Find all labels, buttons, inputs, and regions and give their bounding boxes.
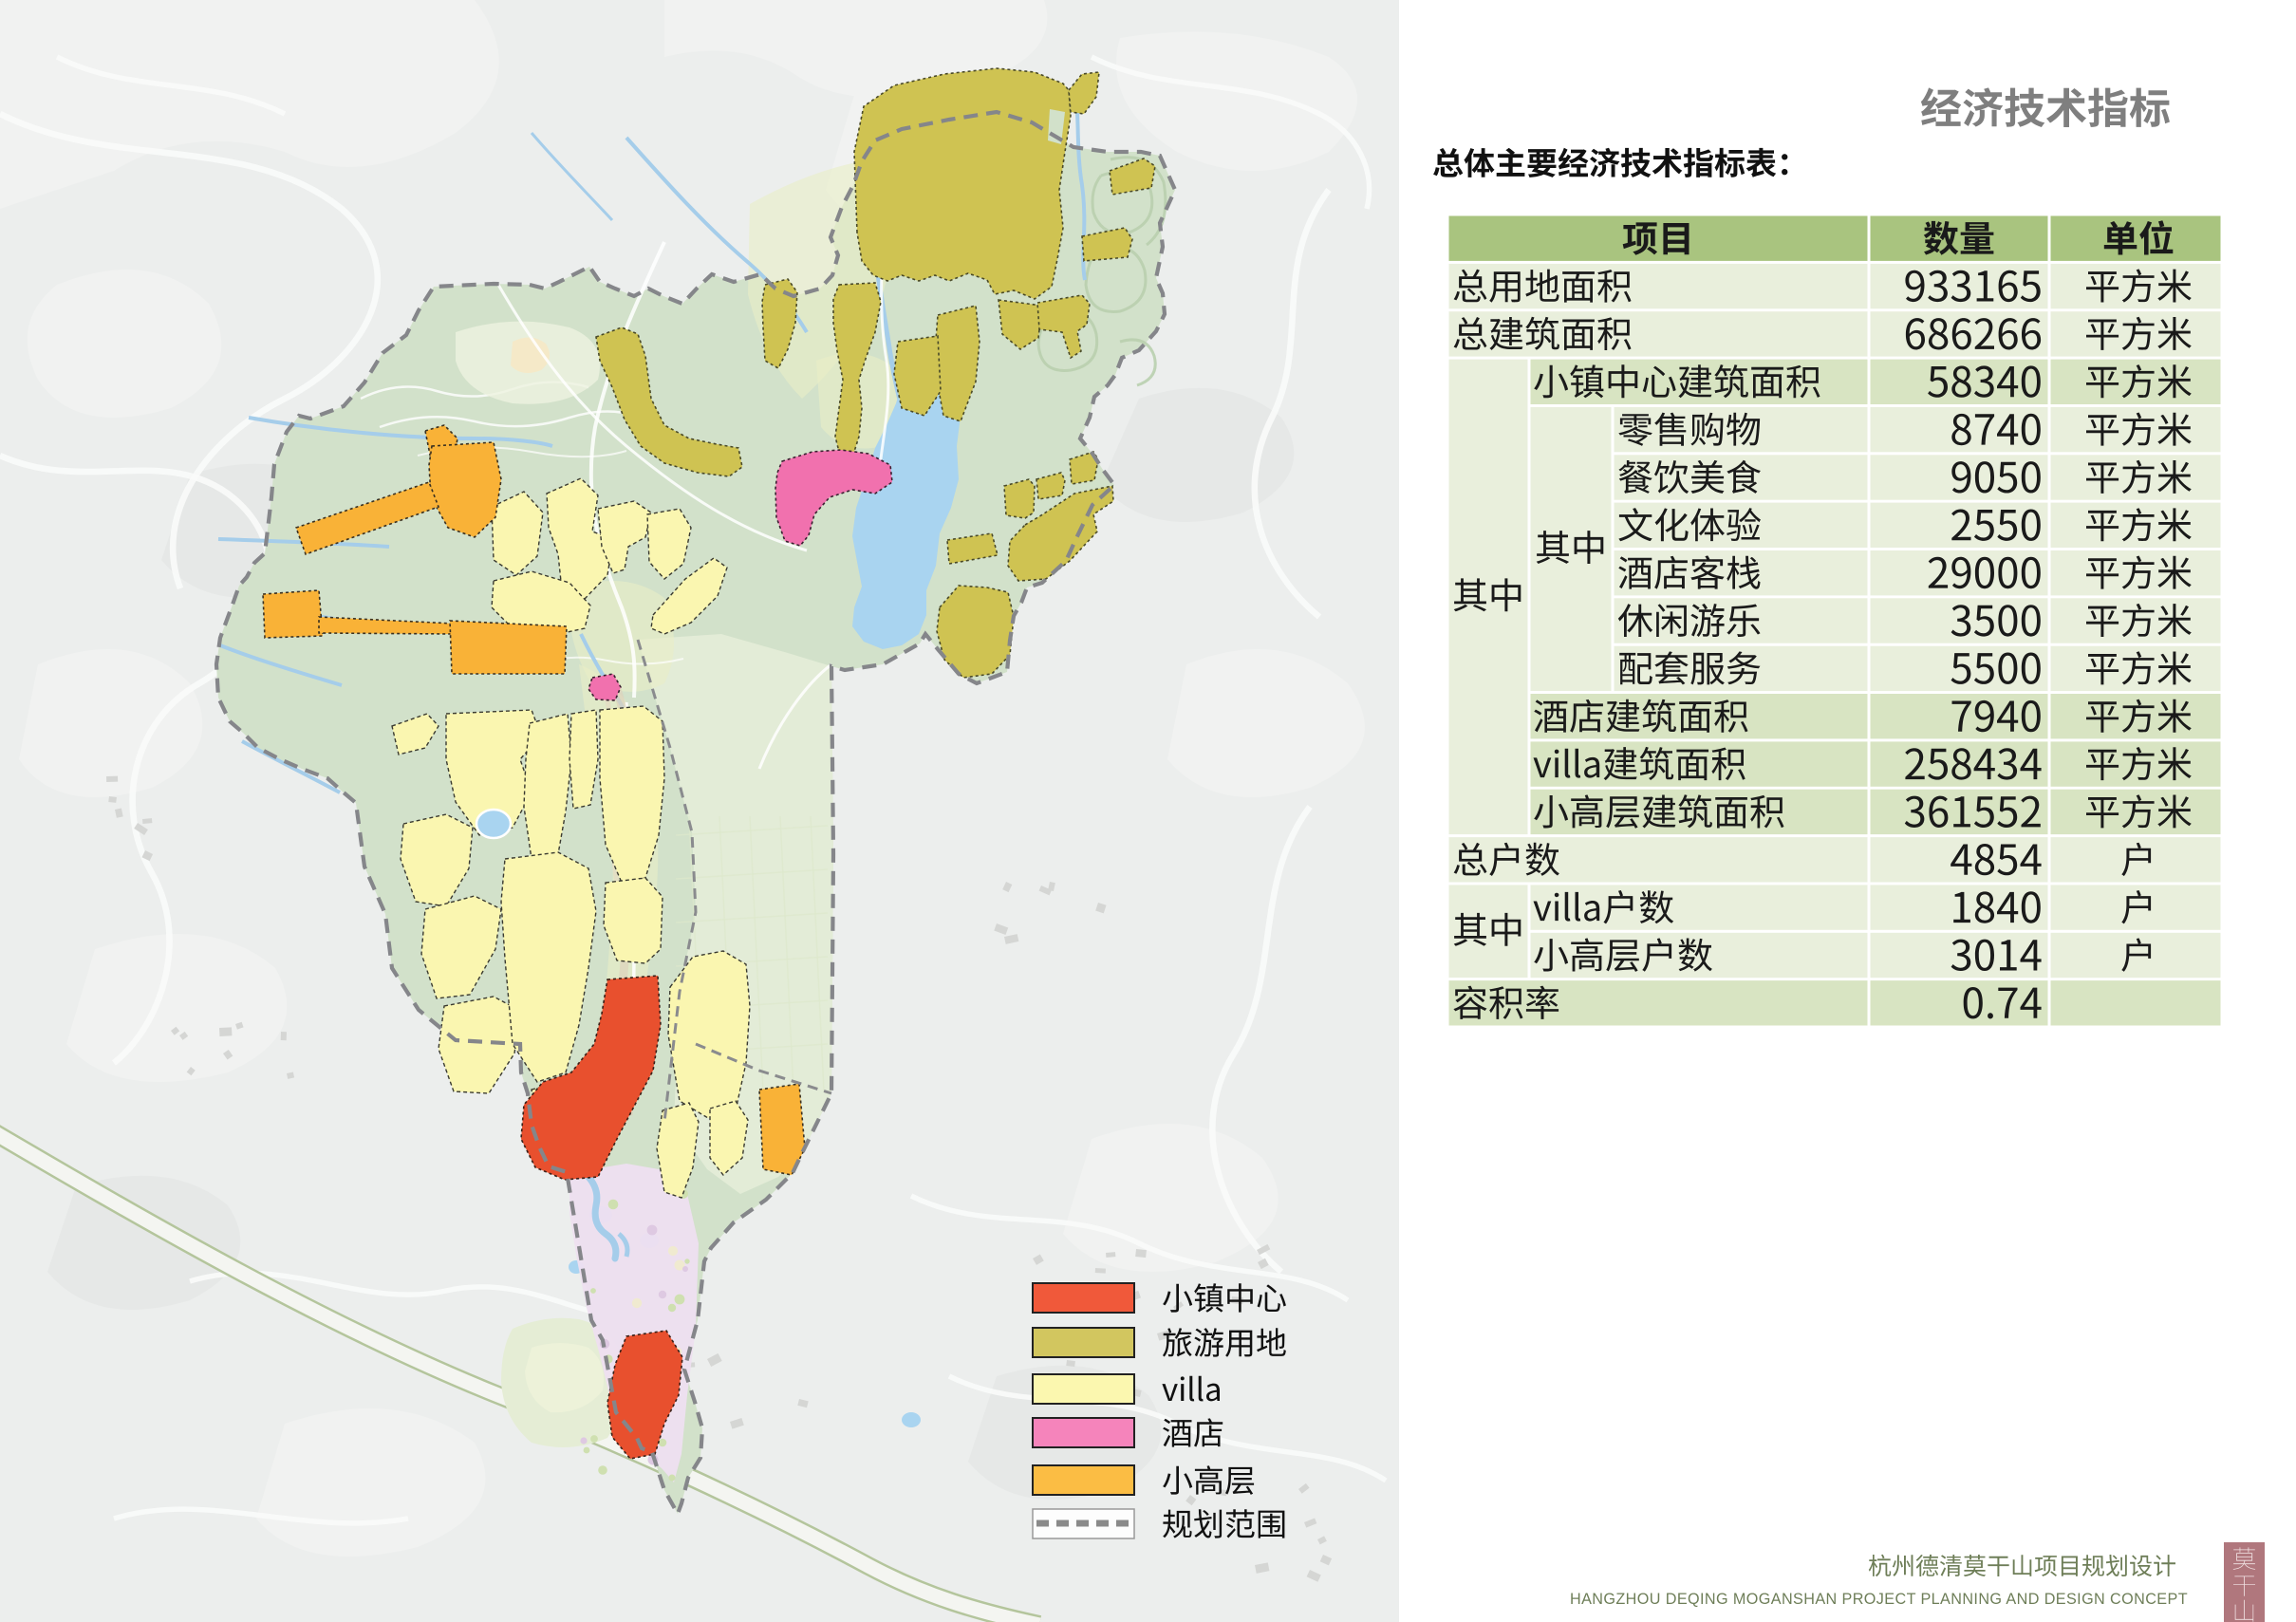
svg-text:HANGZHOU DEQING MOGANSHAN PROJ: HANGZHOU DEQING MOGANSHAN PROJECT PLANNI…	[1570, 1591, 2188, 1608]
